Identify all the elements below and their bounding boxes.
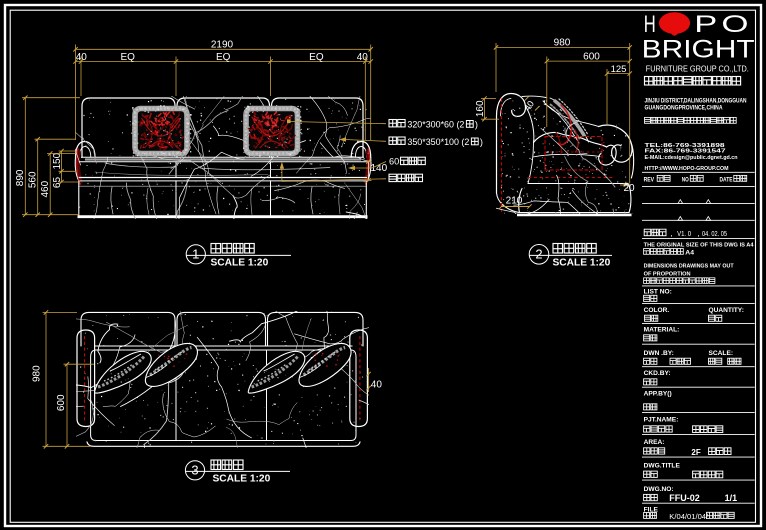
svg-text:P: P	[694, 11, 717, 38]
svg-text:DWN .BY:: DWN .BY:	[644, 350, 674, 357]
svg-text:NO: NO	[682, 177, 689, 184]
svg-text:560: 560	[28, 171, 39, 188]
svg-text:2F: 2F	[691, 448, 700, 457]
svg-text:HTTP://WWW.HOPO-GROUP.COM: HTTP://WWW.HOPO-GROUP.COM	[645, 166, 729, 172]
svg-text:SCALE 1:20: SCALE 1:20	[211, 257, 269, 268]
svg-text:V1. 0: V1. 0	[677, 231, 691, 238]
svg-text:1: 1	[192, 247, 199, 262]
svg-text:890: 890	[15, 169, 26, 186]
svg-text:LIST NO:: LIST NO:	[644, 289, 672, 296]
svg-text:DATE: DATE	[720, 177, 733, 184]
svg-text:EQ: EQ	[216, 52, 231, 63]
svg-text:EQ: EQ	[120, 52, 135, 63]
svg-text:40: 40	[357, 52, 369, 63]
svg-text:DWG.NO:: DWG.NO:	[644, 486, 674, 493]
svg-text:40: 40	[76, 52, 88, 63]
svg-text:A4: A4	[685, 249, 694, 256]
svg-text:2190: 2190	[211, 40, 234, 51]
svg-text:DWG.TITLE: DWG.TITLE	[644, 463, 681, 470]
svg-text:): )	[480, 137, 483, 147]
svg-text:O: O	[721, 11, 748, 38]
svg-text:2: 2	[535, 247, 542, 262]
svg-text:980: 980	[554, 38, 571, 49]
svg-text:COLOR.: COLOR.	[644, 307, 670, 314]
svg-text:GUANGDONGPROVINCE,CHINA: GUANGDONGPROVINCE,CHINA	[645, 104, 723, 111]
svg-text:THE ORIGINAL SIZE OF THIS DWG: THE ORIGINAL SIZE OF THIS DWG IS A4	[644, 242, 755, 248]
svg-text:600: 600	[56, 394, 67, 411]
svg-text:320*300*60 (2: 320*300*60 (2	[407, 119, 464, 129]
svg-text:40: 40	[371, 380, 383, 391]
svg-text:3: 3	[191, 463, 198, 478]
svg-text:60: 60	[389, 157, 399, 167]
svg-text:BRIGHT: BRIGHT	[642, 35, 755, 63]
svg-text:600: 600	[583, 51, 600, 62]
svg-text:SCALE 1:20: SCALE 1:20	[213, 474, 271, 485]
svg-text:AREA:: AREA:	[644, 439, 665, 446]
svg-text:EQ: EQ	[309, 52, 324, 63]
svg-text:QUANTITY:: QUANTITY:	[709, 307, 744, 314]
svg-text:04. 02. 05: 04. 02. 05	[702, 231, 727, 238]
svg-text:H: H	[644, 11, 656, 38]
svg-text:CKD.BY:: CKD.BY:	[644, 370, 671, 377]
svg-text:980: 980	[32, 365, 43, 382]
svg-text:DIMENSIONS DRAWINGS MAY OUT: DIMENSIONS DRAWINGS MAY OUT	[644, 263, 734, 269]
svg-text:REV: REV	[644, 177, 655, 184]
svg-text:460: 460	[40, 180, 51, 197]
svg-text:125: 125	[611, 64, 627, 75]
svg-text:,: ,	[671, 229, 673, 238]
svg-text:): )	[475, 119, 478, 129]
svg-text:E-MAIL:cdesign@public.dgnet.gd: E-MAIL:cdesign@public.dgnet.gd.cn	[645, 155, 738, 161]
svg-text:150: 150	[52, 152, 63, 169]
svg-text:MATERIAL:: MATERIAL:	[644, 327, 680, 334]
svg-text:APP.BY(): APP.BY()	[644, 391, 672, 398]
svg-text:SCALE:: SCALE:	[709, 350, 734, 357]
svg-text:160: 160	[475, 100, 486, 117]
svg-text:FURNITURE GROUP CO.,LTD.: FURNITURE GROUP CO.,LTD.	[646, 65, 749, 74]
svg-text:350*350*100 (2: 350*350*100 (2	[407, 137, 469, 147]
svg-text:,: ,	[698, 229, 700, 238]
svg-text:FAX:86-769-3391547: FAX:86-769-3391547	[645, 148, 727, 154]
svg-text:210: 210	[506, 196, 523, 207]
svg-text:PJT.NAME:: PJT.NAME:	[644, 417, 679, 424]
svg-text:OF PROPORTION: OF PROPORTION	[644, 272, 691, 278]
svg-text:1/1: 1/1	[725, 493, 738, 503]
svg-text:SCALE 1:20: SCALE 1:20	[553, 257, 611, 268]
svg-text:20: 20	[624, 183, 636, 194]
svg-text:FFU-02: FFU-02	[669, 493, 700, 503]
svg-text:K/04/01/04/: K/04/01/04/	[669, 512, 709, 521]
